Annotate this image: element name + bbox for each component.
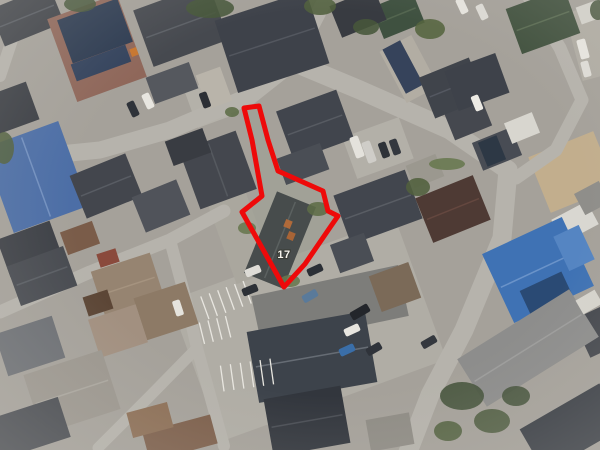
tree-canopy <box>225 107 239 117</box>
tree-canopy <box>440 382 484 410</box>
parcel-number-label: 17 <box>277 249 290 261</box>
aerial-photo: 17 <box>0 0 600 450</box>
tree-canopy <box>353 19 379 35</box>
tree-canopy <box>434 421 462 441</box>
tree-canopy <box>502 386 530 406</box>
tree-canopy <box>415 19 445 39</box>
tree-canopy <box>429 158 465 170</box>
map-canvas: 17 <box>0 0 600 450</box>
tree-canopy <box>474 409 510 433</box>
tree-canopy <box>406 178 430 196</box>
